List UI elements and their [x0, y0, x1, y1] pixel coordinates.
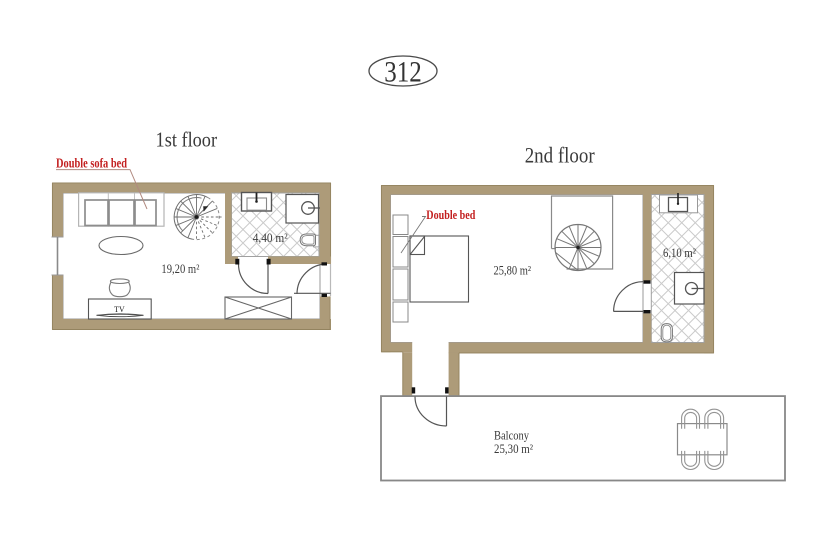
svg-text:4,40 m²: 4,40 m²	[253, 231, 288, 245]
svg-text:25,30 m²: 25,30 m²	[494, 442, 533, 456]
svg-text:19,20 m²: 19,20 m²	[161, 262, 199, 276]
svg-text:Double bed: Double bed	[426, 208, 475, 222]
svg-text:6,10 m²: 6,10 m²	[663, 246, 696, 260]
svg-text:2nd floor: 2nd floor	[525, 142, 595, 167]
svg-text:25,80 m²: 25,80 m²	[494, 264, 532, 278]
svg-text:1st floor: 1st floor	[156, 127, 218, 151]
svg-text:Double sofa bed: Double sofa bed	[56, 156, 127, 171]
svg-text:TV: TV	[114, 304, 125, 314]
svg-text:Balcony: Balcony	[494, 429, 530, 443]
svg-text:312: 312	[384, 56, 422, 89]
